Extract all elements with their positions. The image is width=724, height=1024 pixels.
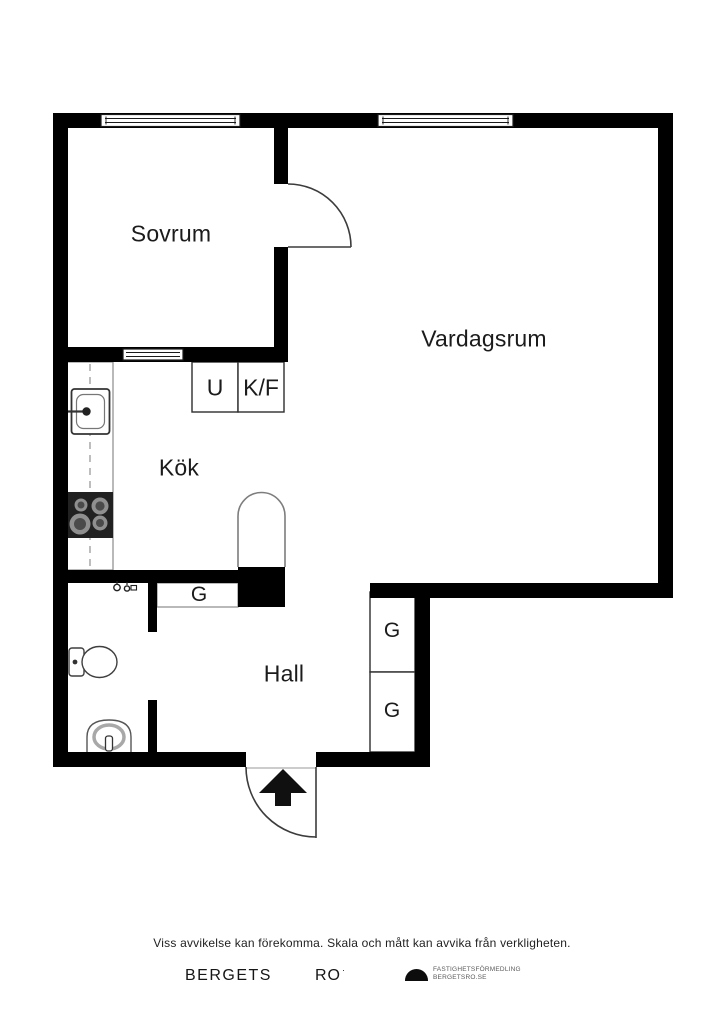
disclaimer-text: Viss avvikelse kan förekomma. Skala och … bbox=[0, 936, 724, 950]
cabinet-label-kf: K/F bbox=[243, 375, 279, 402]
wall-sovrum-right-lower bbox=[274, 247, 288, 362]
agency-line1: FASTIGHETSFÖRMEDLING bbox=[433, 966, 521, 974]
kitchen-pass-window bbox=[123, 349, 183, 360]
washbasin-icon bbox=[87, 720, 131, 752]
room-label-sovrum: Sovrum bbox=[131, 221, 211, 248]
outer-wall-left bbox=[53, 113, 68, 767]
toilet-icon bbox=[69, 647, 117, 678]
agency-line2: BERGETSRO.SE bbox=[433, 974, 521, 982]
wall-bathroom-upper bbox=[148, 583, 157, 632]
wardrobe-label-hall-upper: G bbox=[384, 619, 400, 643]
walls bbox=[53, 113, 673, 767]
wall-hall-right bbox=[415, 592, 430, 767]
stove-icon bbox=[68, 492, 113, 538]
floorplan-page: Sovrum Vardagsrum Kök Hall U K/F G G G V… bbox=[0, 0, 724, 1024]
vardagsrum-window bbox=[378, 115, 513, 127]
kitchen-column-block bbox=[238, 567, 285, 607]
wardrobe-label-kitchen: G bbox=[191, 583, 207, 607]
wardrobe-label-hall-lower: G bbox=[384, 699, 400, 723]
bedroom-door bbox=[288, 184, 351, 247]
brand-ro-text: RO bbox=[315, 967, 341, 984]
entry-arrow bbox=[259, 769, 307, 806]
room-label-hall: Hall bbox=[264, 661, 304, 688]
wall-bathroom-lower bbox=[148, 700, 157, 752]
sink-icon bbox=[68, 389, 110, 434]
sovrum-window bbox=[101, 115, 240, 127]
outer-wall-bottom-right bbox=[316, 752, 430, 767]
floor-plan bbox=[0, 0, 724, 1024]
wall-kitchen-bottom bbox=[66, 570, 240, 583]
room-label-kok: Kök bbox=[159, 455, 199, 482]
wall-sovrum-right-upper bbox=[274, 128, 288, 184]
brand-ro: RO· bbox=[315, 967, 345, 985]
brand-bergets: BERGETS bbox=[185, 967, 272, 985]
kitchen-arch-column bbox=[238, 493, 285, 568]
outer-wall-right bbox=[658, 113, 673, 598]
room-label-vardagsrum: Vardagsrum bbox=[421, 326, 547, 353]
cabinet-label-u: U bbox=[207, 375, 224, 402]
outer-wall-bottom-left bbox=[53, 752, 246, 767]
brand-ro-mark: · bbox=[342, 965, 346, 975]
agency-text: FASTIGHETSFÖRMEDLING BERGETSRO.SE bbox=[433, 966, 521, 981]
